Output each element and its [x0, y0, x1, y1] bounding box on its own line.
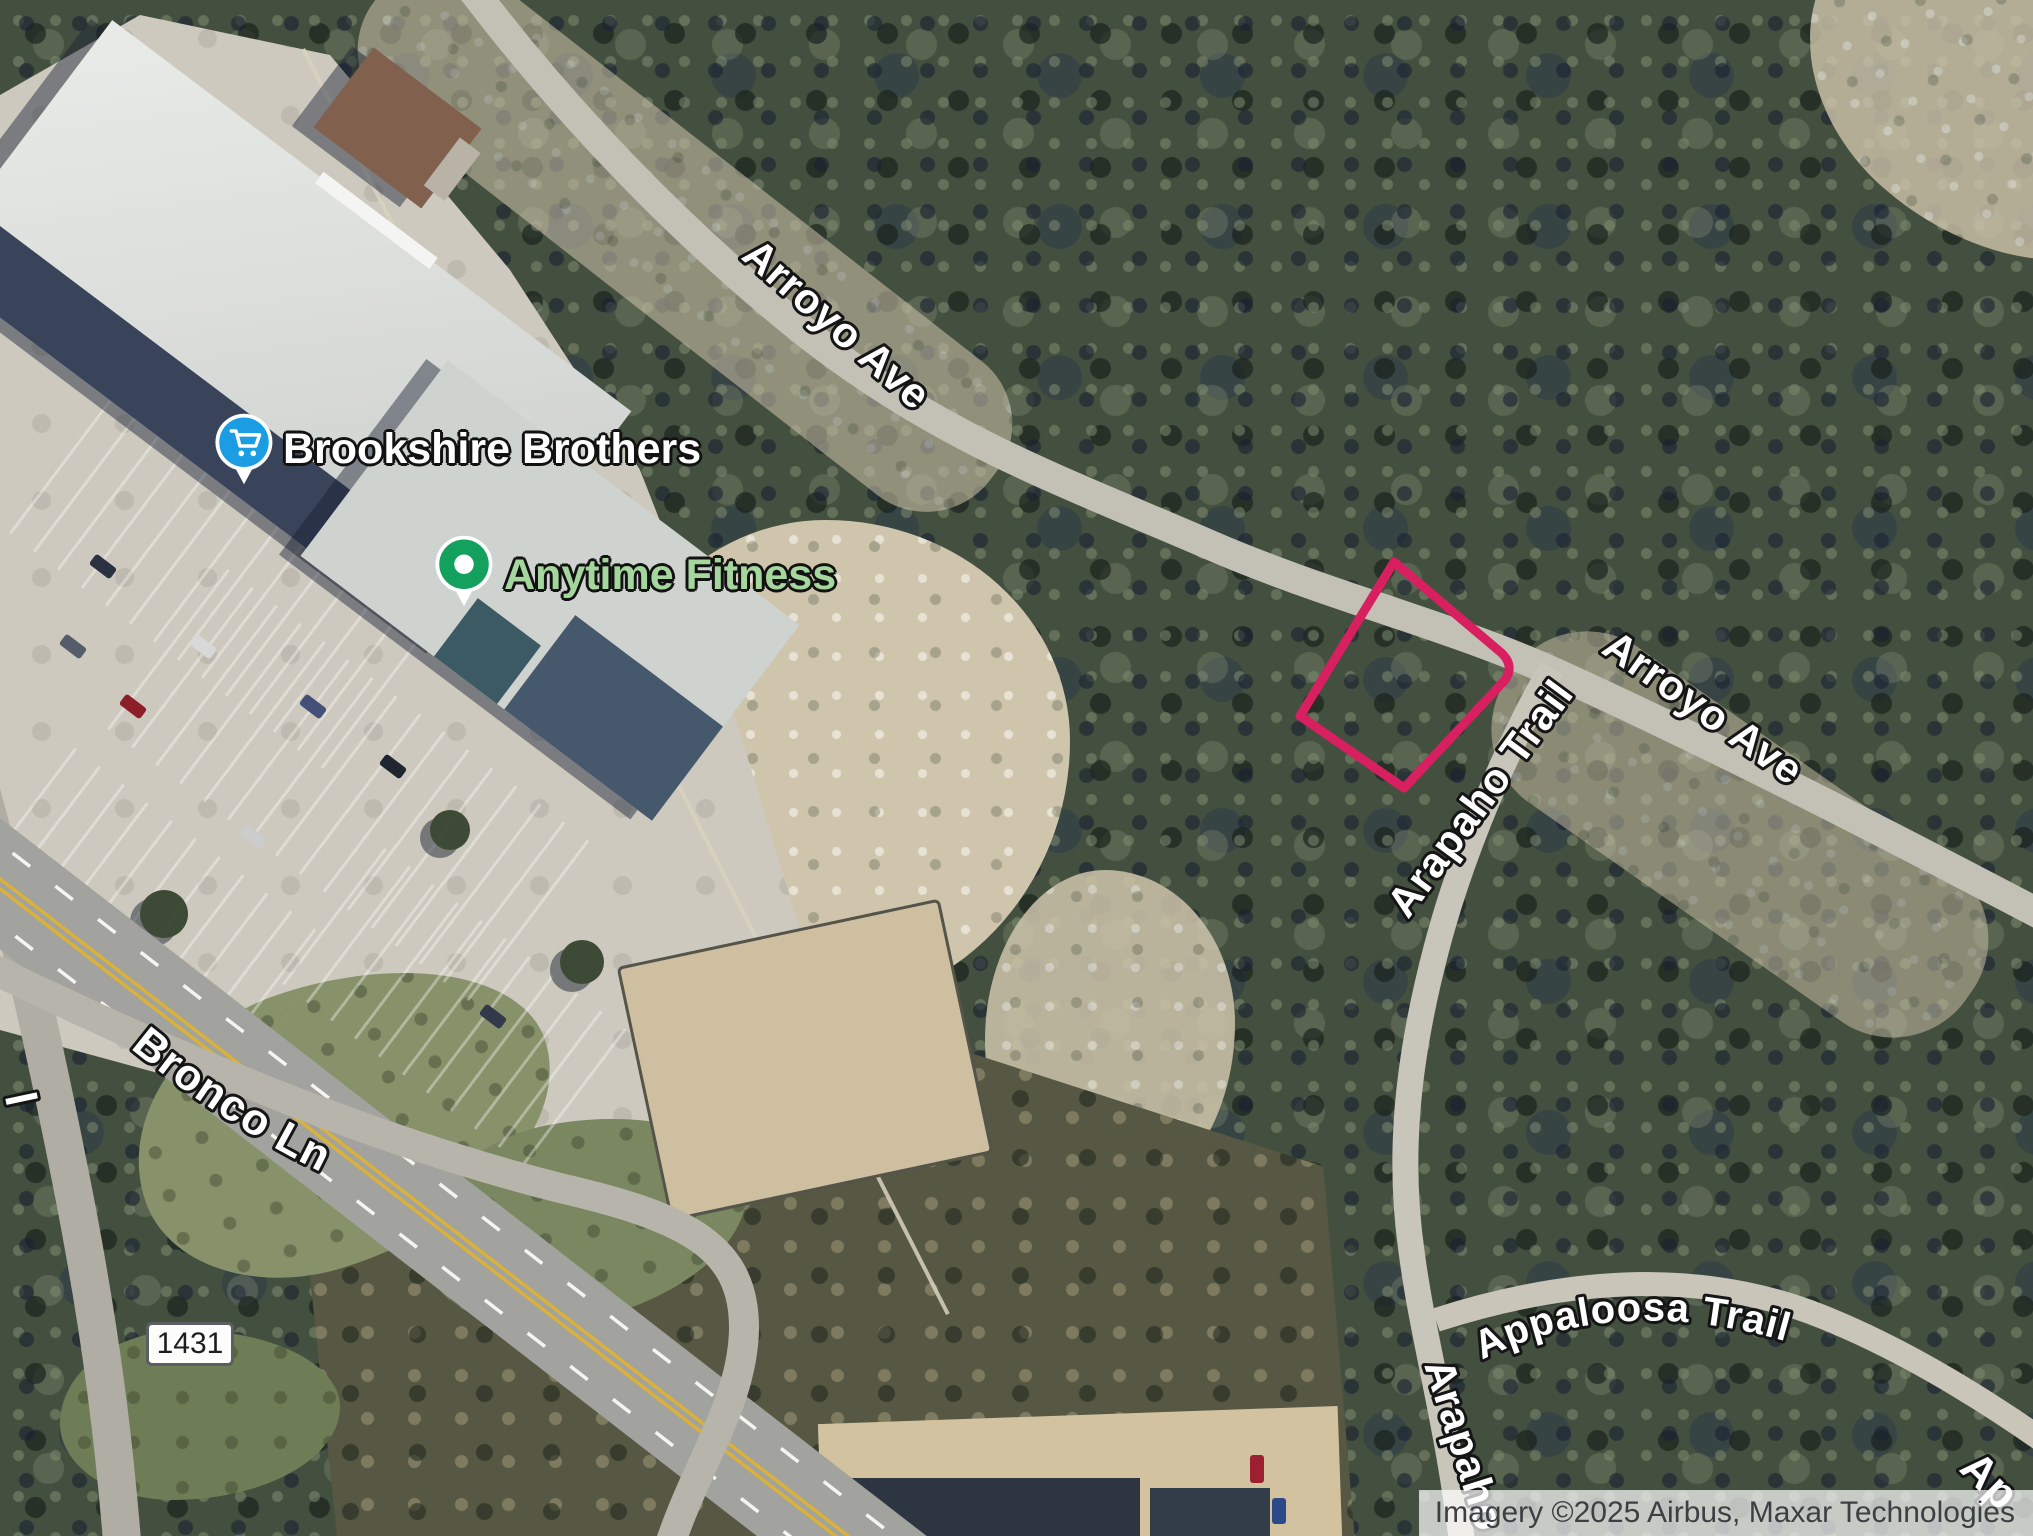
road-highway-1431	[0, 845, 905, 1536]
street-label-arroyo-ave-top: Arroyo Ave	[734, 229, 940, 418]
shopping-cart-pin-icon[interactable]	[214, 412, 274, 486]
poi-label-brookshire-brothers[interactable]: Brookshire Brothers	[283, 428, 701, 471]
route-shield-1431: 1431	[146, 1322, 234, 1366]
poi-label-anytime-fitness[interactable]: Anytime Fitness	[504, 554, 836, 597]
map-attribution: Imagery ©2025 Airbus, Maxar Technologies	[1419, 1490, 2033, 1536]
road-frontage	[0, 700, 125, 1536]
circle-dot-pin-icon[interactable]	[434, 534, 494, 608]
satellite-map[interactable]: Arroyo Ave Arroyo Ave Arapaho Trail Arap…	[0, 0, 2033, 1536]
roads-overlay: Arroyo Ave Arroyo Ave Arapaho Trail Arap…	[0, 0, 2033, 1536]
